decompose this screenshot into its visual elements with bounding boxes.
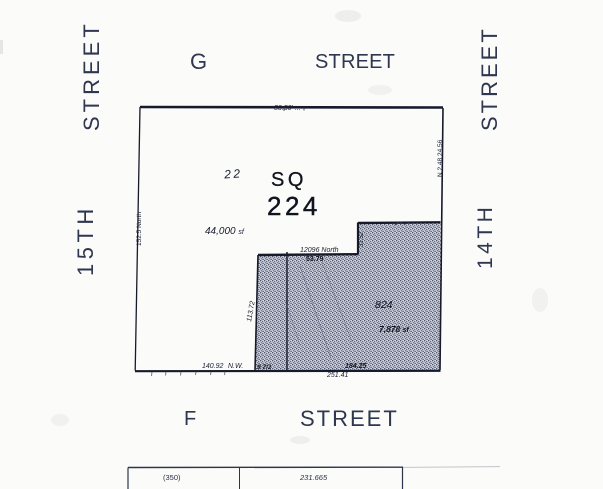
svg-text:53.79: 53.79 xyxy=(306,256,324,263)
svg-text:14TH: 14TH xyxy=(474,204,497,269)
svg-text:184.25: 184.25 xyxy=(345,363,367,370)
svg-text:31.52: 31.52 xyxy=(359,231,365,247)
svg-text:12096 North: 12096 North xyxy=(300,247,339,254)
svg-text:N.W.: N.W. xyxy=(228,363,243,370)
svg-text:231.665: 231.665 xyxy=(299,473,328,482)
svg-text:(350): (350) xyxy=(163,473,181,482)
svg-text:N 2.48 24.56: N 2.48 24.56 xyxy=(437,139,444,177)
svg-text:140.92: 140.92 xyxy=(202,363,224,370)
svg-text:152.5 North: 152.5 North xyxy=(136,212,143,246)
svg-text:224: 224 xyxy=(267,191,321,221)
svg-text:STREET: STREET xyxy=(300,406,399,431)
svg-text:F: F xyxy=(184,408,196,430)
svg-text:9 7/2: 9 7/2 xyxy=(257,364,272,371)
svg-text:22: 22 xyxy=(223,166,243,181)
svg-text:SQ: SQ xyxy=(271,169,307,191)
svg-text:STREET: STREET xyxy=(79,20,104,131)
svg-text:251.41: 251.41 xyxy=(326,372,349,379)
svg-text:STREET: STREET xyxy=(477,26,502,131)
svg-text:G: G xyxy=(190,49,208,74)
svg-text:824: 824 xyxy=(375,299,393,311)
svg-text:STREET: STREET xyxy=(315,51,395,73)
svg-text:15TH: 15TH xyxy=(73,204,98,276)
svg-text:30.50' ...: 30.50' ... xyxy=(274,105,301,112)
